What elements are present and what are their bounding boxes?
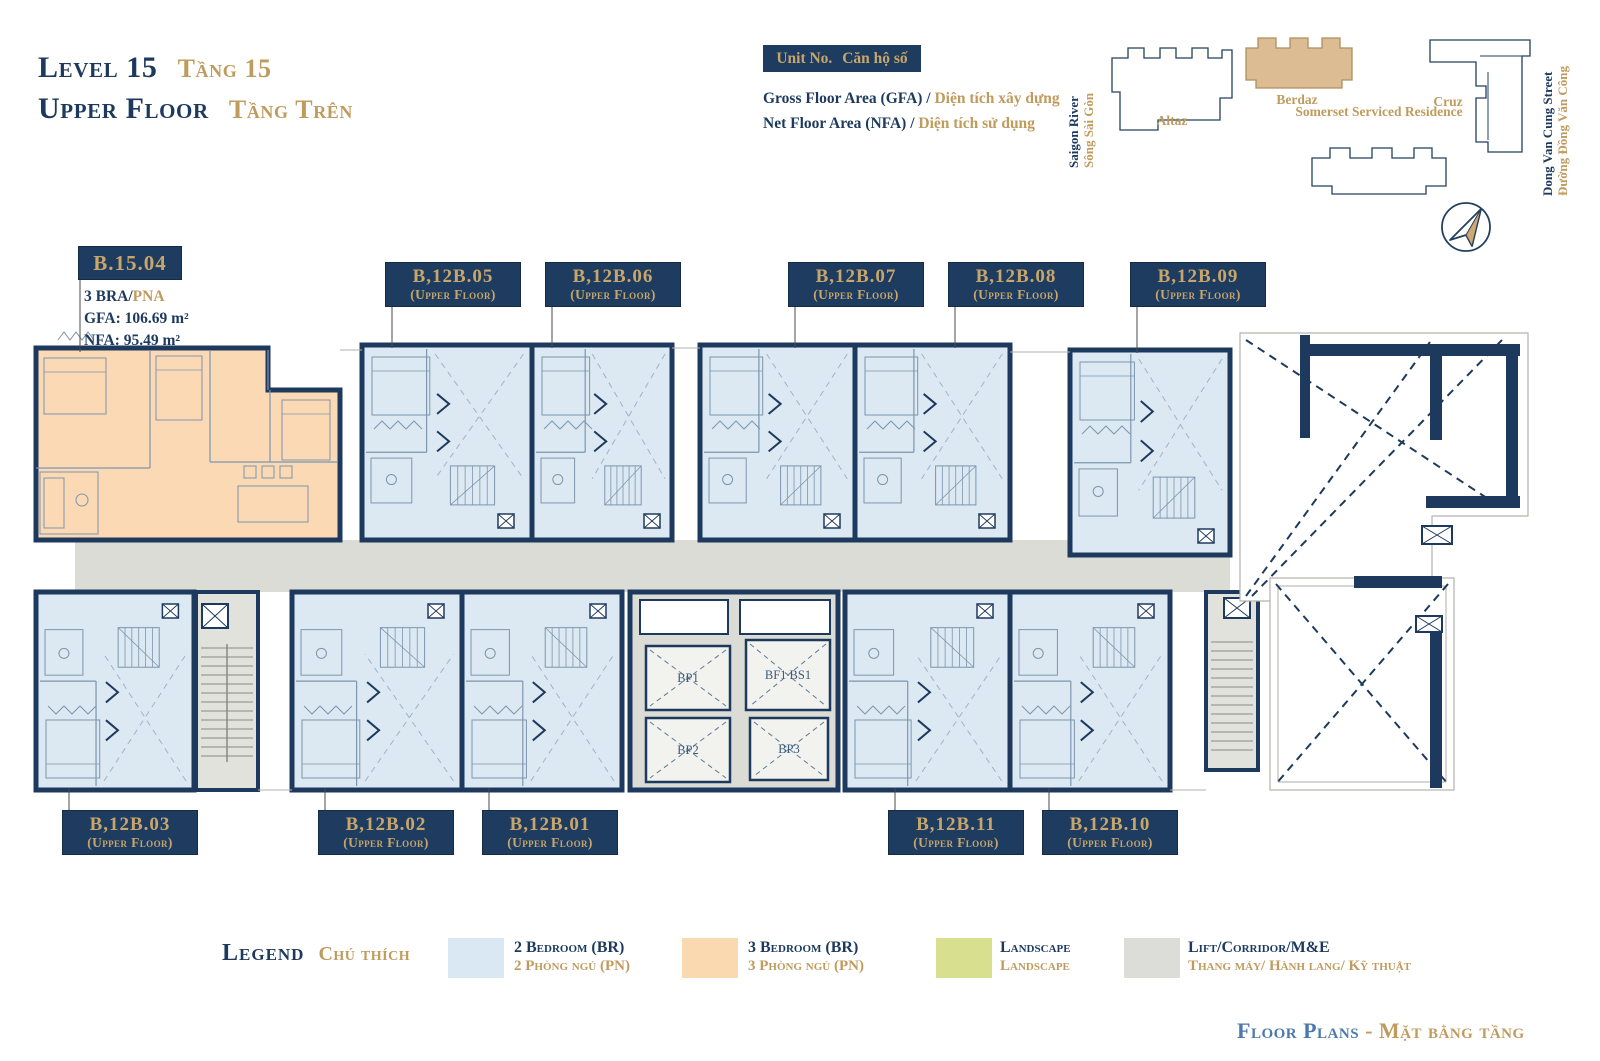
unit-B12B08-floor [855, 345, 1010, 540]
core-room [740, 600, 830, 634]
nfa-label-en: Net Floor Area (NFA) / [763, 115, 918, 132]
legend-2br-vi: 2 Phòng ngủ (PN) [514, 957, 630, 976]
unit-badge-B,12B.02: B,12B.02(Upper Floor) [318, 810, 454, 855]
void-wall [1426, 496, 1520, 508]
unit-badge-id: B,12B.05 [386, 266, 520, 287]
unit-badge-B,12B.07: B,12B.07(Upper Floor) [788, 262, 924, 307]
legend-item-lift: Lift/Corridor/M&E Thang máy/ Hành lang/ … [1188, 938, 1413, 976]
unit-no-badge: Unit No. Căn hộ số [763, 45, 921, 72]
level-label-en: Level 15 [38, 51, 158, 84]
lift-label-BP1: BP1 [677, 671, 699, 685]
void-wall [1430, 618, 1442, 788]
unit-badge-id: B,12B.09 [1131, 266, 1265, 287]
unit-badge-B,12B.01: B,12B.01(Upper Floor) [482, 810, 618, 855]
footer-vi: Mặt bằng tầng [1379, 1018, 1525, 1043]
unit-no-vi: Căn hộ số [842, 50, 907, 67]
unit-B12B07-floor [700, 345, 855, 540]
void-wall [1430, 344, 1442, 440]
street-label-vi: Đường Đồng Văn Công [1555, 66, 1570, 196]
lift-label-BP3: BP3 [778, 742, 800, 756]
unit-badge-B,12B.03: B,12B.03(Upper Floor) [62, 810, 198, 855]
floor-label-en: Upper Floor [38, 92, 209, 125]
unit-badge-id: B,12B.11 [889, 814, 1023, 835]
street-label-en: Dong Van Cung Street [1540, 66, 1555, 196]
legend-item-2br: 2 Bedroom (BR) 2 Phòng ngủ (PN) [514, 938, 630, 976]
legend-item-landscape: Landscape Landscape [1000, 938, 1071, 976]
legend-swatch-3br [682, 938, 738, 978]
gfa-label-vi: Diện tích xây dựng [934, 90, 1059, 107]
unit-badge-B,12B.08: B,12B.08(Upper Floor) [948, 262, 1084, 307]
nfa-key-line: Net Floor Area (NFA) / Diện tích sử dụng [763, 111, 1060, 136]
river-label-vi: Sông Sài Gòn [1081, 93, 1096, 168]
legend-title: LegendChú thích [222, 940, 410, 967]
unit-badge-B-15-04: B.15.04 [78, 246, 182, 280]
building-berdaz [1246, 38, 1352, 88]
legend-title-en: Legend [222, 940, 304, 966]
level-label-vi: Tầng 15 [178, 54, 272, 83]
legend-landscape-en: Landscape [1000, 938, 1071, 957]
legend-lift-vi: Thang máy/ Hành lang/ Kỹ thuật [1188, 957, 1413, 976]
title-line-1: Level 15 Tầng 15 [38, 48, 353, 89]
unit-badge-id: B,12B.01 [483, 814, 617, 835]
floor-label-vi: Tầng Trên [229, 95, 353, 124]
legend-swatch-lift [1124, 938, 1180, 978]
unit-badge-id: B,12B.06 [546, 266, 680, 287]
core-room [640, 600, 728, 634]
legend-lift-en: Lift/Corridor/M&E [1188, 938, 1413, 957]
unit-badge-sub: (Upper Floor) [889, 835, 1023, 851]
featured-unit-info: 3 BRA/PNA GFA: 106.69 m² NFA: 95.49 m² [84, 286, 189, 352]
street-label: Dong Van Cung Street Đường Đồng Văn Công [1540, 66, 1570, 196]
unit-badge-id: B,12B.03 [63, 814, 197, 835]
lift-label-BF1 BS1: BF1 BS1 [765, 668, 811, 682]
legend-landscape-vi: Landscape [1000, 957, 1071, 976]
footer-en: Floor Plans [1237, 1018, 1359, 1043]
legend-item-3br: 3 Bedroom (BR) 3 Phòng ngủ (PN) [748, 938, 864, 976]
footer-title: Floor Plans - Mặt bằng tầng [1237, 1018, 1525, 1044]
unit-B12B06-floor [532, 345, 672, 540]
unit-B.15.04-floor [36, 348, 340, 540]
river-label-en: Saigon River [1066, 93, 1081, 168]
legend-3br-vi: 3 Phòng ngủ (PN) [748, 957, 864, 976]
void-wall [1306, 344, 1520, 356]
legend-title-vi: Chú thích [318, 943, 410, 965]
unit-badge-id: B,12B.10 [1043, 814, 1177, 835]
unit-badge-sub: (Upper Floor) [546, 287, 680, 303]
unit-badge-sub: (Upper Floor) [789, 287, 923, 303]
unit-badge-sub: (Upper Floor) [483, 835, 617, 851]
void-wall [1354, 576, 1442, 588]
featured-unit-gfa: GFA: 106.69 m² [84, 308, 189, 330]
void-wall [1506, 344, 1518, 508]
legend-swatch-2br [448, 938, 504, 978]
legend-2br-en: 2 Bedroom (BR) [514, 938, 630, 957]
unit-badge-sub: (Upper Floor) [319, 835, 453, 851]
floor-plan-page: BP1BP2BF1 BS1BP3 Level 15 Tầng 15 Upper … [0, 0, 1600, 1061]
unit-badge-sub: (Upper Floor) [1131, 287, 1265, 303]
unit-badge-id: B,12B.02 [319, 814, 453, 835]
page-title: Level 15 Tầng 15 Upper Floor Tầng Trên [38, 48, 353, 130]
saigon-river-label: Saigon River Sông Sài Gòn [1066, 93, 1096, 168]
unit-badge-sub: (Upper Floor) [1043, 835, 1177, 851]
unit-badge-id: B,12B.08 [949, 266, 1083, 287]
lift-label-BP2: BP2 [677, 743, 699, 757]
unit-badge-B,12B.10: B,12B.10(Upper Floor) [1042, 810, 1178, 855]
unit-badge-sub: (Upper Floor) [386, 287, 520, 303]
featured-unit-type: 3 BRA/PNA [84, 286, 189, 308]
unit-badge-sub: (Upper Floor) [63, 835, 197, 851]
legend-swatch-landscape [936, 938, 992, 978]
unit-badge-id: B,12B.07 [789, 266, 923, 287]
unit-type-en: 3 BRA/ [84, 288, 133, 305]
footer-sep: - [1359, 1018, 1379, 1043]
unit-type-vi: PNA [133, 288, 165, 305]
unit-key: Unit No. Căn hộ số Gross Floor Area (GFA… [763, 45, 1060, 136]
gfa-key-line: Gross Floor Area (GFA) / Diện tích xây d… [763, 86, 1060, 111]
floor-plan-svg: BP1BP2BF1 BS1BP3 [0, 0, 1600, 1061]
nfa-label-vi: Diện tích sử dụng [918, 115, 1035, 132]
void-upper [1240, 333, 1528, 601]
unit-badge-B,12B.11: B,12B.11(Upper Floor) [888, 810, 1024, 855]
unit-badge-B,12B.06: B,12B.06(Upper Floor) [545, 262, 681, 307]
corridor [75, 540, 1230, 592]
building-label-cruz: Cruz [1418, 94, 1478, 109]
unit-badge-B,12B.09: B,12B.09(Upper Floor) [1130, 262, 1266, 307]
gfa-label-en: Gross Floor Area (GFA) / [763, 90, 934, 107]
unit-no-en: Unit No. [776, 50, 832, 67]
unit-badge-sub: (Upper Floor) [949, 287, 1083, 303]
building-somerset [1312, 148, 1446, 194]
unit-badge-B,12B.05: B,12B.05(Upper Floor) [385, 262, 521, 307]
featured-unit-nfa: NFA: 95.49 m² [84, 330, 189, 352]
legend-3br-en: 3 Bedroom (BR) [748, 938, 864, 957]
title-line-2: Upper Floor Tầng Trên [38, 89, 353, 130]
building-label-altaz: Altaz [1140, 113, 1204, 128]
